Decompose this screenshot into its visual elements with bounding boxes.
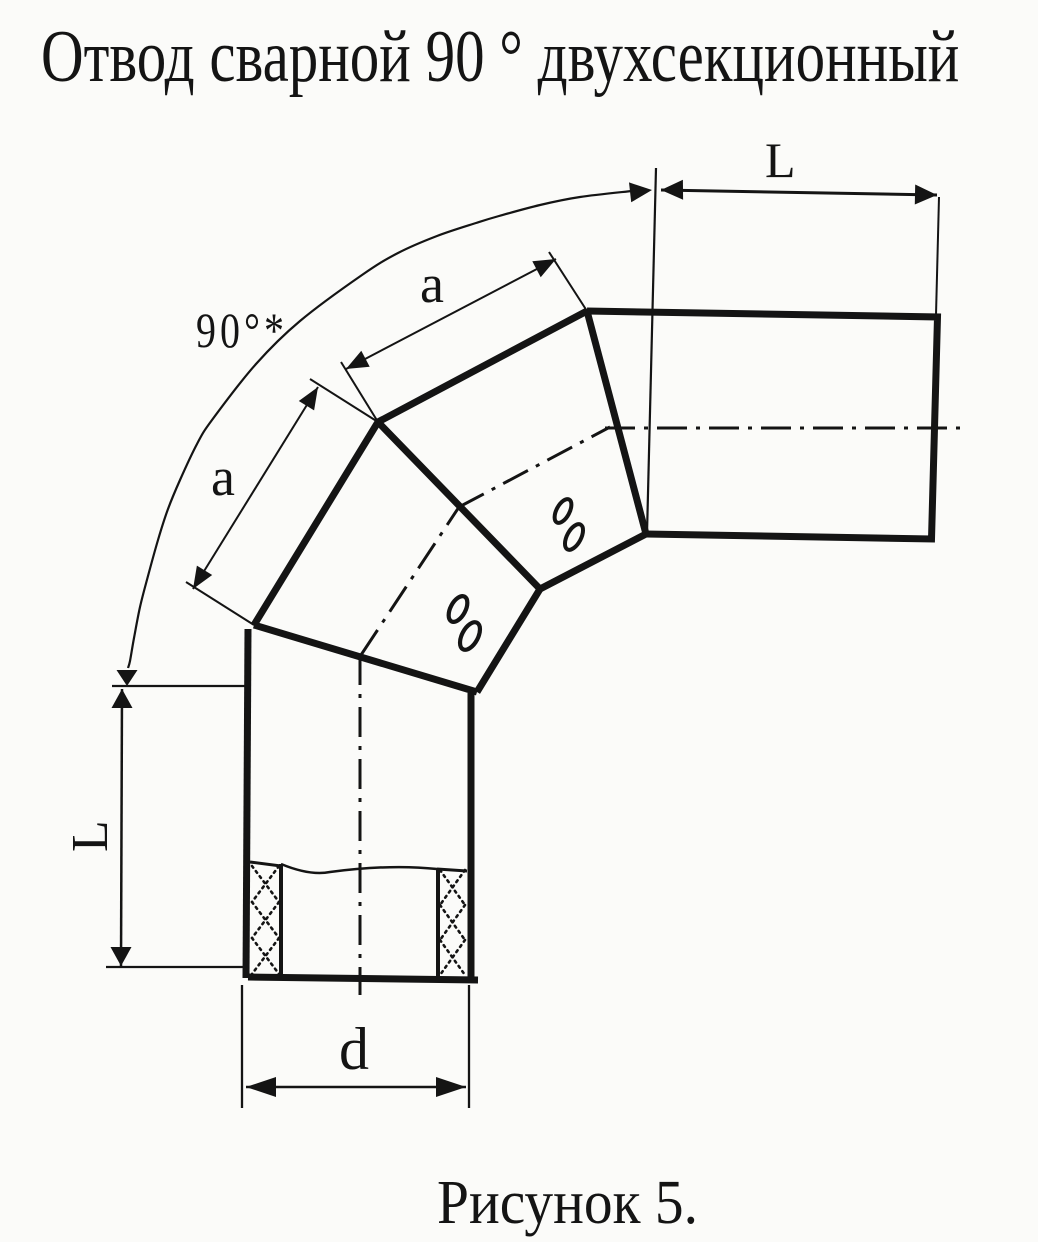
svg-text:a: a xyxy=(211,447,235,507)
svg-text:L: L xyxy=(765,132,796,188)
svg-text:Рисунок 5.: Рисунок 5. xyxy=(437,1168,698,1238)
svg-text:L: L xyxy=(62,820,119,852)
svg-text:Отвод сварной 90 ° двухсекцион: Отвод сварной 90 ° двухсекционный xyxy=(41,16,959,98)
svg-text:90°*: 90°* xyxy=(196,303,288,358)
svg-text:a: a xyxy=(420,254,444,314)
svg-text:d: d xyxy=(339,1016,369,1082)
